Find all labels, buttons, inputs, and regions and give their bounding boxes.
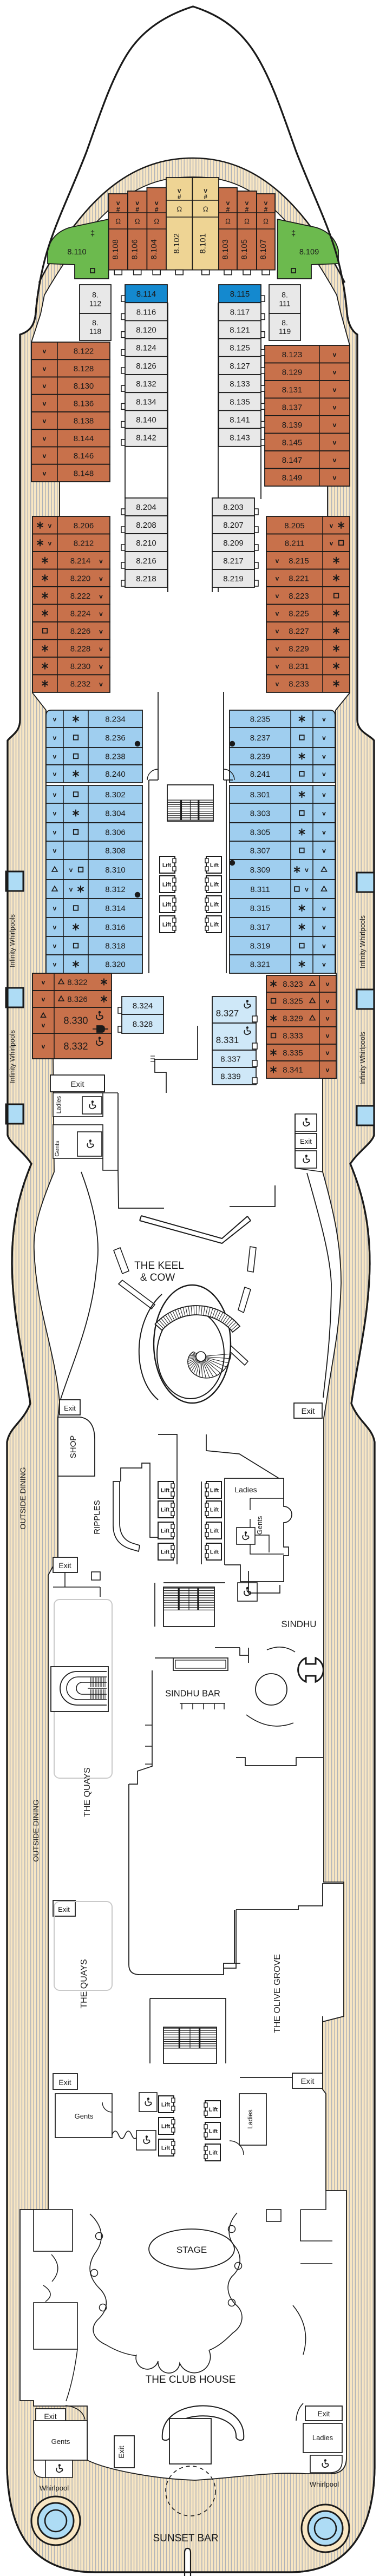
svg-text:v: v [333, 421, 337, 429]
svg-text:v: v [53, 770, 57, 778]
svg-text:8.211: 8.211 [285, 539, 304, 548]
svg-text:v: v [48, 522, 52, 529]
svg-text:8.324: 8.324 [133, 1001, 153, 1011]
svg-text:8.136: 8.136 [74, 399, 94, 408]
svg-text:v: v [42, 995, 45, 1003]
svg-text:v: v [42, 979, 45, 986]
svg-text:Exit: Exit [70, 1080, 84, 1089]
svg-text:8.: 8. [92, 291, 99, 299]
svg-text:Lift: Lift [161, 2123, 171, 2130]
svg-text:v: v [53, 734, 57, 742]
svg-text:8.238: 8.238 [105, 752, 126, 762]
svg-text:8.148: 8.148 [74, 469, 94, 478]
svg-text:v: v [322, 734, 326, 742]
svg-text:8.309: 8.309 [250, 866, 271, 875]
svg-text:8.108: 8.108 [111, 239, 120, 260]
svg-text:THE KEEL: THE KEEL [134, 1260, 184, 1271]
svg-text:#: # [245, 206, 249, 213]
svg-text:Ω: Ω [225, 217, 231, 225]
svg-text:8.142: 8.142 [136, 434, 156, 443]
svg-text:8.128: 8.128 [74, 364, 94, 373]
svg-text:8.302: 8.302 [105, 790, 126, 799]
svg-text:8.127: 8.127 [230, 362, 250, 371]
svg-text:8.233: 8.233 [289, 679, 309, 689]
svg-text:8.131: 8.131 [282, 385, 303, 395]
svg-text:& COW: & COW [140, 1272, 175, 1283]
svg-text:THE CLUB HOUSE: THE CLUB HOUSE [146, 2374, 236, 2385]
svg-text:8.328: 8.328 [133, 1020, 153, 1029]
svg-text:8.114: 8.114 [136, 290, 156, 299]
svg-text:8.122: 8.122 [74, 347, 94, 356]
svg-text:v: v [333, 403, 337, 411]
svg-text:v: v [69, 866, 73, 874]
svg-text:8.226: 8.226 [70, 627, 91, 636]
svg-text:v: v [276, 645, 279, 652]
svg-text:8.103: 8.103 [221, 239, 230, 260]
svg-text:THE QUAYS: THE QUAYS [83, 1767, 92, 1817]
svg-text:Lift: Lift [210, 1528, 219, 1535]
svg-text:v: v [322, 961, 326, 968]
svg-text:v: v [99, 663, 103, 670]
svg-text:v: v [305, 886, 309, 893]
svg-text:#: # [178, 193, 181, 201]
svg-text:‡: ‡ [90, 229, 95, 238]
svg-text:8.225: 8.225 [289, 609, 309, 618]
svg-text:v: v [322, 810, 326, 817]
svg-text:v: v [322, 770, 326, 778]
svg-text:v: v [326, 1066, 330, 1074]
svg-text:8.205: 8.205 [284, 521, 305, 530]
svg-text:8.107: 8.107 [259, 239, 268, 260]
svg-text:v: v [326, 1049, 330, 1057]
svg-text:v: v [99, 557, 103, 565]
svg-text:Exit: Exit [300, 1137, 312, 1145]
svg-text:Exit: Exit [300, 2077, 315, 2086]
svg-text:118: 118 [89, 327, 102, 336]
svg-text:Gents: Gents [51, 2437, 70, 2446]
svg-text:Exit: Exit [58, 2078, 71, 2087]
svg-text:THE QUAYS: THE QUAYS [80, 1959, 89, 2008]
svg-text:v: v [333, 368, 337, 376]
svg-text:8.215: 8.215 [289, 556, 309, 566]
svg-text:v: v [326, 998, 330, 1005]
svg-text:Ladies: Ladies [246, 2109, 254, 2128]
svg-text:8.323: 8.323 [283, 980, 303, 989]
svg-text:Lift: Lift [210, 1549, 219, 1556]
svg-text:8.304: 8.304 [105, 809, 126, 818]
svg-text:8.339: 8.339 [220, 1072, 241, 1081]
svg-text:8.125: 8.125 [230, 344, 250, 353]
svg-text:8.222: 8.222 [70, 592, 91, 601]
svg-text:8.146: 8.146 [74, 451, 94, 461]
svg-text:8.124: 8.124 [136, 344, 156, 353]
svg-text:v: v [53, 829, 57, 836]
svg-text:8.145: 8.145 [282, 438, 303, 447]
svg-text:8.228: 8.228 [70, 644, 91, 653]
svg-text:Lift: Lift [210, 882, 219, 888]
svg-text:8.236: 8.236 [105, 733, 126, 743]
svg-text:‡: ‡ [291, 229, 296, 238]
svg-text:Lift: Lift [210, 862, 219, 869]
svg-text:RIPPLES: RIPPLES [93, 1500, 102, 1534]
svg-text:v: v [43, 348, 47, 355]
svg-text:8.318: 8.318 [105, 942, 126, 951]
svg-text:Lift: Lift [210, 922, 219, 928]
svg-text:v: v [276, 680, 279, 687]
svg-text:v: v [43, 452, 47, 460]
svg-text:8.329: 8.329 [283, 1014, 303, 1024]
svg-text:8.133: 8.133 [230, 379, 250, 389]
svg-text:8.330: 8.330 [63, 1015, 88, 1026]
svg-text:v: v [99, 575, 103, 582]
svg-text:v: v [322, 753, 326, 761]
svg-text:v: v [43, 435, 47, 442]
svg-text:Exit: Exit [64, 1404, 76, 1412]
svg-text:Ω: Ω [154, 217, 159, 225]
svg-text:8.138: 8.138 [74, 417, 94, 426]
svg-text:Lift: Lift [209, 2128, 218, 2135]
svg-text:v: v [326, 980, 330, 988]
svg-text:8.217: 8.217 [223, 556, 244, 566]
svg-text:8.224: 8.224 [70, 609, 91, 618]
svg-text:8.204: 8.204 [136, 503, 156, 512]
svg-text:Ladies: Ladies [312, 2434, 333, 2442]
svg-text:v: v [43, 469, 47, 477]
svg-text:8.: 8. [282, 291, 288, 299]
svg-text:8.104: 8.104 [149, 239, 159, 260]
svg-text:v: v [326, 1032, 330, 1040]
svg-text:v: v [53, 753, 57, 761]
svg-text:#: # [135, 206, 139, 213]
svg-text:#: # [226, 206, 230, 213]
svg-text:v: v [276, 609, 279, 617]
svg-text:8.208: 8.208 [136, 521, 156, 530]
svg-text:8.123: 8.123 [282, 350, 303, 359]
svg-text:v: v [322, 829, 326, 836]
svg-text:Exit: Exit [301, 1407, 315, 1416]
svg-text:SHOP: SHOP [69, 1436, 78, 1459]
svg-text:Infinity Whirlpools: Infinity Whirlpools [9, 1030, 16, 1083]
svg-text:Infinity Whirlpools: Infinity Whirlpools [9, 914, 16, 967]
svg-text:v: v [48, 539, 52, 547]
svg-text:8.105: 8.105 [240, 239, 249, 260]
svg-text:Lift: Lift [161, 1549, 170, 1556]
svg-text:v: v [53, 923, 57, 931]
svg-text:v: v [276, 663, 279, 670]
svg-text:8.241: 8.241 [250, 770, 271, 779]
svg-text:Lift: Lift [210, 1507, 219, 1513]
svg-text:8.335: 8.335 [283, 1048, 303, 1058]
svg-text:v: v [322, 791, 326, 798]
svg-text:119: 119 [279, 327, 291, 336]
svg-text:8.322: 8.322 [67, 978, 88, 987]
svg-text:v: v [333, 351, 337, 358]
svg-text:8.223: 8.223 [289, 592, 309, 601]
svg-text:v: v [330, 522, 333, 529]
svg-text:v: v [333, 386, 337, 394]
svg-text:8.144: 8.144 [74, 434, 94, 443]
svg-text:Lift: Lift [161, 2145, 171, 2152]
svg-text:v: v [276, 592, 279, 600]
svg-text:Lift: Lift [209, 2107, 218, 2113]
svg-text:Lift: Lift [209, 2150, 218, 2157]
svg-text:8.230: 8.230 [70, 662, 91, 671]
svg-text:v: v [330, 539, 333, 547]
svg-text:8.341: 8.341 [283, 1066, 303, 1075]
svg-text:Infinity Whirlpools: Infinity Whirlpools [359, 915, 367, 968]
svg-text:v: v [53, 716, 57, 723]
svg-text:8.218: 8.218 [136, 574, 156, 584]
svg-text:v: v [322, 942, 326, 950]
svg-text:8.115: 8.115 [230, 290, 250, 299]
svg-text:8.234: 8.234 [105, 715, 126, 724]
svg-text:THE OLIVE GROVE: THE OLIVE GROVE [273, 1954, 282, 2033]
svg-text:Exit: Exit [317, 2409, 330, 2418]
svg-text:8.303: 8.303 [250, 809, 271, 818]
svg-text:SUNSET BAR: SUNSET BAR [153, 2533, 218, 2544]
svg-text:Ω: Ω [203, 205, 208, 213]
svg-text:SINDHU: SINDHU [281, 1619, 316, 1629]
svg-text:v: v [322, 847, 326, 855]
svg-text:v: v [326, 1015, 330, 1022]
svg-text:#: # [155, 206, 159, 213]
svg-text:v: v [333, 456, 337, 464]
svg-text:Lift: Lift [210, 1487, 219, 1494]
svg-text:8.: 8. [92, 318, 99, 327]
svg-text:8.332: 8.332 [63, 1041, 88, 1052]
svg-text:#: # [116, 206, 120, 213]
svg-text:8.143: 8.143 [230, 434, 250, 443]
svg-text:8.149: 8.149 [282, 473, 303, 482]
svg-text:OUTSIDE DINING: OUTSIDE DINING [18, 1467, 27, 1529]
svg-text:8.117: 8.117 [230, 307, 250, 317]
svg-text:Ω: Ω [176, 205, 182, 213]
svg-text:#: # [264, 206, 268, 213]
svg-text:Exit: Exit [44, 2412, 56, 2421]
svg-text:8.305: 8.305 [250, 828, 271, 837]
svg-text:Ladies: Ladies [56, 1096, 62, 1113]
svg-text:8.312: 8.312 [105, 885, 126, 894]
svg-text:Ω: Ω [115, 217, 121, 225]
svg-text:Ladies: Ladies [234, 1485, 257, 1494]
svg-text:v: v [99, 592, 103, 600]
svg-text:8.216: 8.216 [136, 556, 156, 566]
svg-text:v: v [99, 627, 103, 635]
svg-text:Lift: Lift [161, 1487, 170, 1494]
svg-text:8.315: 8.315 [250, 904, 271, 913]
svg-text:8.212: 8.212 [74, 539, 94, 548]
svg-text:Lift: Lift [162, 862, 172, 869]
svg-text:8.314: 8.314 [105, 904, 126, 913]
svg-text:STAGE: STAGE [176, 2245, 207, 2255]
svg-text:#: # [204, 193, 207, 201]
svg-text:8.206: 8.206 [74, 521, 94, 530]
svg-text:8.317: 8.317 [250, 923, 271, 932]
svg-text:8.134: 8.134 [136, 397, 156, 407]
svg-text:8.232: 8.232 [70, 679, 91, 689]
svg-text:8.321: 8.321 [250, 960, 271, 969]
svg-text:8.306: 8.306 [105, 828, 126, 837]
svg-text:8.326: 8.326 [67, 995, 88, 1004]
svg-text:8.310: 8.310 [105, 866, 126, 875]
svg-text:v: v [276, 557, 279, 565]
svg-text:Ω: Ω [135, 217, 140, 225]
svg-text:v: v [53, 810, 57, 817]
svg-text:8.331: 8.331 [216, 1035, 239, 1045]
svg-text:8.126: 8.126 [136, 362, 156, 371]
svg-text:Lift: Lift [161, 2102, 171, 2108]
svg-text:v: v [276, 574, 279, 582]
svg-text:111: 111 [279, 299, 290, 308]
svg-text:8.110: 8.110 [67, 248, 86, 257]
svg-text:8.231: 8.231 [289, 662, 309, 671]
svg-text:8.109: 8.109 [299, 248, 319, 257]
svg-text:8.227: 8.227 [289, 627, 309, 636]
svg-text:8.137: 8.137 [282, 403, 303, 412]
svg-text:8.319: 8.319 [250, 942, 271, 951]
svg-text:8.203: 8.203 [223, 503, 244, 512]
svg-text:112: 112 [89, 299, 102, 308]
svg-text:Whirlpool: Whirlpool [310, 2480, 339, 2488]
svg-text:8.333: 8.333 [283, 1032, 303, 1041]
svg-text:v: v [43, 399, 47, 407]
svg-text:8.220: 8.220 [70, 574, 91, 583]
svg-text:8.102: 8.102 [172, 233, 181, 254]
svg-text:8.237: 8.237 [250, 733, 271, 743]
svg-text:OUTSIDE DINING: OUTSIDE DINING [31, 1799, 40, 1861]
svg-text:Whirlpool: Whirlpool [40, 2484, 69, 2492]
svg-text:v: v [333, 438, 337, 446]
svg-text:8.307: 8.307 [250, 847, 271, 856]
svg-text:Exit: Exit [58, 1561, 71, 1570]
svg-text:8.311: 8.311 [250, 885, 270, 894]
svg-text:Infinity Whirlpools: Infinity Whirlpools [359, 1032, 367, 1085]
svg-text:v: v [99, 645, 103, 653]
svg-text:Lift: Lift [162, 882, 172, 888]
svg-text:v: v [43, 382, 47, 390]
svg-text:Ω: Ω [244, 217, 250, 225]
svg-text:v: v [43, 417, 47, 425]
svg-text:v: v [53, 942, 57, 950]
svg-text:8.327: 8.327 [216, 1008, 239, 1019]
svg-text:Gents: Gents [54, 1140, 61, 1157]
svg-text:Gents: Gents [256, 1516, 264, 1535]
svg-text:8.130: 8.130 [74, 382, 94, 391]
svg-text:v: v [305, 866, 309, 874]
svg-text:8.219: 8.219 [223, 574, 244, 584]
svg-text:8.120: 8.120 [136, 326, 156, 335]
svg-text:8.132: 8.132 [136, 379, 156, 389]
svg-text:v: v [276, 627, 279, 635]
svg-text:8.139: 8.139 [282, 421, 303, 430]
svg-text:8.: 8. [282, 318, 288, 327]
svg-text:8.209: 8.209 [223, 539, 244, 548]
svg-text:8.316: 8.316 [105, 923, 126, 932]
svg-text:8.221: 8.221 [289, 574, 309, 583]
svg-text:8.301: 8.301 [250, 790, 271, 799]
svg-text:v: v [333, 474, 337, 481]
svg-text:Lift: Lift [162, 922, 172, 928]
svg-text:Lift: Lift [210, 902, 219, 908]
svg-text:Ω: Ω [263, 217, 269, 225]
svg-text:8.135: 8.135 [230, 397, 250, 407]
svg-text:v: v [69, 886, 73, 893]
svg-text:8.337: 8.337 [220, 1055, 241, 1064]
svg-text:8.308: 8.308 [105, 847, 126, 856]
svg-text:8.129: 8.129 [282, 368, 303, 377]
svg-text:Lift: Lift [162, 902, 172, 908]
svg-text:v: v [322, 904, 326, 912]
svg-text:8.240: 8.240 [105, 770, 126, 779]
svg-text:v: v [43, 365, 47, 372]
svg-text:8.214: 8.214 [70, 556, 91, 566]
svg-text:Lift: Lift [161, 1528, 170, 1535]
svg-text:8.101: 8.101 [199, 233, 208, 254]
svg-text:8.121: 8.121 [230, 326, 250, 335]
svg-text:Exit: Exit [58, 1905, 70, 1913]
svg-text:Lift: Lift [161, 1507, 170, 1513]
svg-text:8.207: 8.207 [223, 521, 244, 530]
svg-text:8.116: 8.116 [136, 307, 156, 317]
svg-text:8.229: 8.229 [289, 644, 309, 653]
svg-text:SINDHU BAR: SINDHU BAR [165, 1689, 220, 1699]
svg-text:v: v [42, 1043, 45, 1050]
svg-text:Gents: Gents [75, 2112, 94, 2120]
svg-text:8.140: 8.140 [136, 416, 156, 425]
svg-text:8.239: 8.239 [250, 752, 271, 762]
svg-text:8.320: 8.320 [105, 960, 126, 969]
svg-text:8.141: 8.141 [230, 416, 250, 425]
svg-text:8.106: 8.106 [130, 239, 140, 260]
svg-text:v: v [53, 961, 57, 968]
svg-text:v: v [99, 680, 103, 688]
svg-text:v: v [53, 904, 57, 912]
svg-text:Exit: Exit [117, 2446, 126, 2458]
svg-text:8.210: 8.210 [136, 539, 156, 548]
svg-text:8.147: 8.147 [282, 456, 303, 465]
svg-text:v: v [42, 1021, 45, 1029]
svg-text:8.235: 8.235 [250, 715, 271, 724]
svg-text:8.325: 8.325 [283, 997, 303, 1006]
svg-text:v: v [53, 847, 57, 855]
svg-text:v: v [53, 791, 57, 798]
svg-text:v: v [99, 610, 103, 618]
svg-text:v: v [322, 716, 326, 723]
svg-text:v: v [322, 923, 326, 931]
